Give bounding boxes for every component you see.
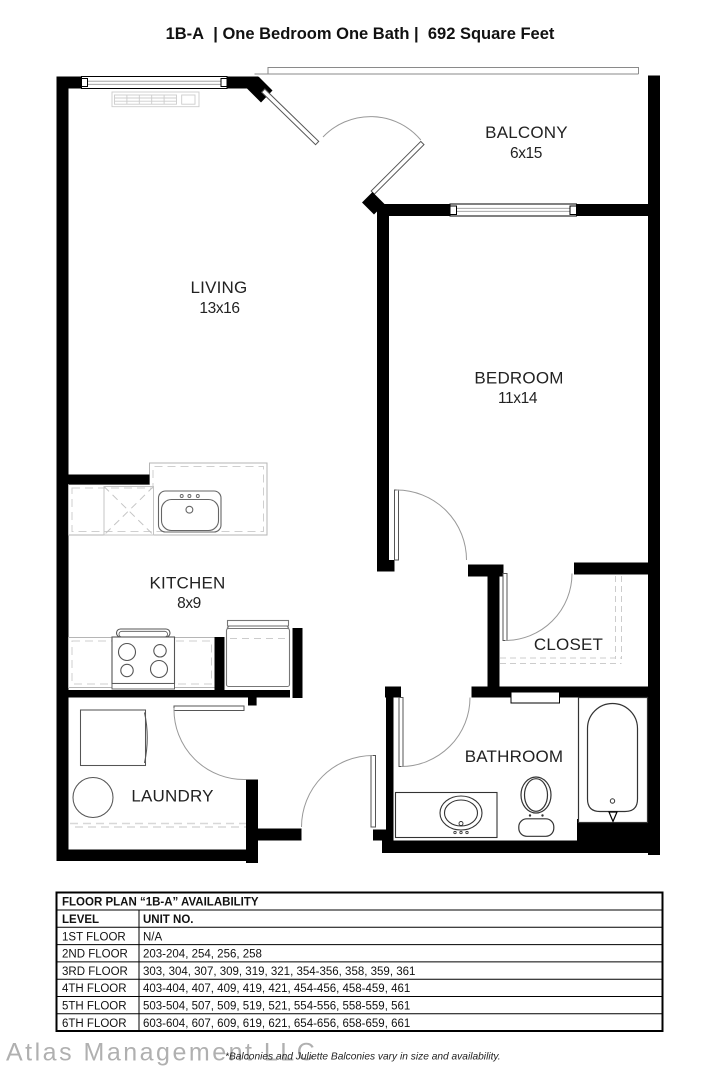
svg-text:3RD FLOOR: 3RD FLOOR [62,966,128,978]
svg-text:8x9: 8x9 [177,595,201,612]
svg-text:6x15: 6x15 [510,145,542,162]
svg-text:BALCONY: BALCONY [485,123,568,142]
svg-text:CLOSET: CLOSET [534,635,603,654]
svg-text:203-204, 254, 256, 258: 203-204, 254, 256, 258 [143,949,262,961]
svg-text:LIVING: LIVING [191,278,248,297]
svg-text:*Balconies and Juliette Balcon: *Balconies and Juliette Balconies vary i… [225,1052,501,1063]
svg-text:6TH FLOOR: 6TH FLOOR [62,1018,127,1030]
svg-text:13x16: 13x16 [199,300,239,317]
svg-text:UNIT NO.: UNIT NO. [143,914,193,926]
svg-text:BATHROOM: BATHROOM [465,747,564,766]
svg-text:403-404, 407, 409, 419, 421, 4: 403-404, 407, 409, 419, 421, 454-456, 45… [143,983,410,995]
svg-text:FLOOR PLAN “1B-A” AVAILABILITY: FLOOR PLAN “1B-A” AVAILABILITY [62,897,259,909]
svg-text:5TH FLOOR: 5TH FLOOR [62,1001,127,1013]
svg-text:4TH FLOOR: 4TH FLOOR [62,983,127,995]
svg-text:N/A: N/A [143,931,163,943]
svg-text:BEDROOM: BEDROOM [474,369,563,388]
svg-text:1ST FLOOR: 1ST FLOOR [62,931,126,943]
svg-text:1B-A | One Bedroom One Bath |: 1B-A | One Bedroom One Bath | 692 Square… [166,25,555,43]
svg-text:LAUNDRY: LAUNDRY [131,787,213,806]
svg-text:11x14: 11x14 [498,390,538,407]
svg-text:603-604, 607, 609, 619, 621, 6: 603-604, 607, 609, 619, 621, 654-656, 65… [143,1018,410,1030]
svg-text:303, 304, 307, 309, 319, 321,: 303, 304, 307, 309, 319, 321, 354-356, 3… [143,966,415,978]
svg-text:KITCHEN: KITCHEN [149,574,225,593]
svg-text:2ND FLOOR: 2ND FLOOR [62,949,128,961]
svg-text:LEVEL: LEVEL [62,914,99,926]
svg-text:503-504, 507, 509, 519, 521, 5: 503-504, 507, 509, 519, 521, 554-556, 55… [143,1001,410,1013]
